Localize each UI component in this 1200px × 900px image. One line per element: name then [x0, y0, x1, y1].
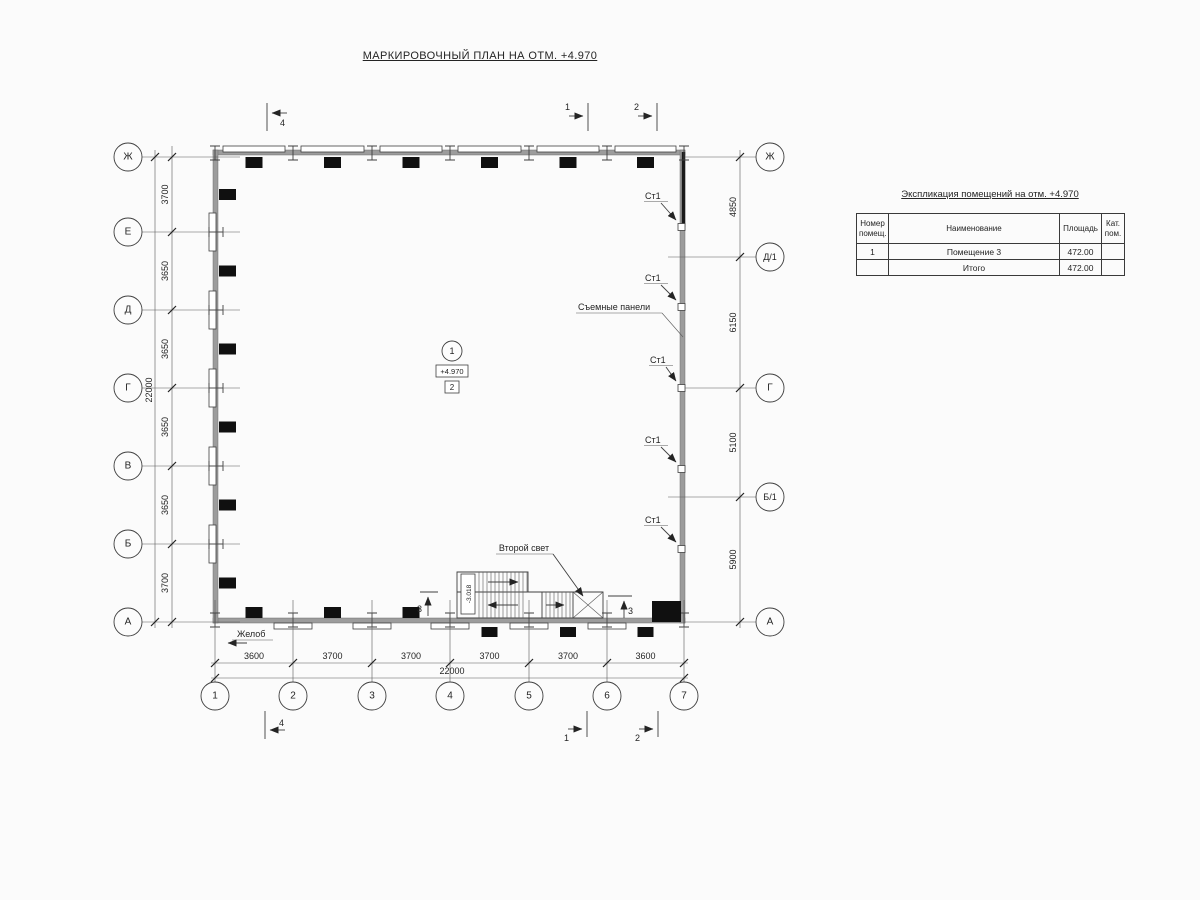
- axis-label: А: [767, 617, 774, 628]
- axis-label: Б/1: [763, 492, 776, 502]
- wall-panels: [209, 146, 676, 629]
- schedule-header-row: Номер помещ. Наименование Площадь Кат. п…: [857, 214, 1125, 244]
- schedule-cell-cat: [1102, 244, 1125, 260]
- schedule-table: Номер помещ. Наименование Площадь Кат. п…: [856, 213, 1125, 276]
- schedule-total-row: Итого 472.00: [857, 260, 1125, 276]
- axis-label: Д/1: [763, 252, 777, 262]
- axis-label: 1: [212, 691, 218, 702]
- dim-left-3: 3650: [160, 339, 170, 359]
- dim-left-2: 3650: [160, 261, 170, 281]
- zone-tag: 2: [450, 383, 455, 392]
- schedule-header-cat: Кат. пом.: [1102, 214, 1125, 244]
- schedule-cell-area: 472.00: [1060, 244, 1102, 260]
- axis-label: Б: [125, 539, 132, 550]
- dim-right-3: 5100: [728, 432, 738, 452]
- room-schedule: Экспликация помещений на отм. +4.970 Ном…: [856, 189, 1124, 276]
- plan-labels: Ст1 Ст1 Ст1 Ст1 Ст1 Съемные панели Второ…: [228, 191, 683, 643]
- section-4-label: 4: [279, 718, 284, 728]
- schedule-cell-num: 1: [857, 244, 889, 260]
- section-2-label: 2: [635, 733, 640, 743]
- st1-label: Ст1: [645, 191, 661, 201]
- dim-left-1: 3700: [160, 184, 170, 204]
- st1-label: Ст1: [650, 355, 666, 365]
- gutter-label: Желоб: [237, 629, 265, 639]
- axis-label: А: [125, 617, 132, 628]
- dim-bottom-total: 22000: [439, 666, 464, 676]
- st1-label: Ст1: [645, 515, 661, 525]
- axis-label: Ж: [123, 152, 133, 163]
- dim-bottom-3: 3700: [401, 651, 421, 661]
- axis-label: Г: [767, 383, 773, 394]
- axis-label: Е: [125, 227, 132, 238]
- dim-left-5: 3650: [160, 495, 170, 515]
- dim-right-2: 6150: [728, 312, 738, 332]
- st1-label: Ст1: [645, 435, 661, 445]
- section-3-label: 3: [417, 604, 422, 614]
- schedule-header-num: Номер помещ.: [857, 214, 889, 244]
- section-1-label: 1: [564, 733, 569, 743]
- axis-label: Г: [125, 383, 131, 394]
- section-marks: 4 1 2 4 1 2 3 3: [265, 102, 658, 743]
- dim-bottom-5: 3700: [558, 651, 578, 661]
- removable-panels-label: Съемные панели: [578, 302, 650, 312]
- dim-left-total: 22000: [144, 377, 154, 402]
- dim-bottom-2: 3700: [322, 651, 342, 661]
- schedule-title: Экспликация помещений на отм. +4.970: [856, 189, 1124, 200]
- axis-bubbles-right: Ж Д/1 Г Б/1 А: [756, 143, 784, 636]
- dim-bottom-4: 3700: [479, 651, 499, 661]
- schedule-cell-name: Помещение 3: [889, 244, 1060, 260]
- elevation-tag: +4.970: [440, 367, 463, 376]
- schedule-header-name: Наименование: [889, 214, 1060, 244]
- room-number: 1: [449, 346, 454, 356]
- corner-equipment-block: [652, 601, 681, 622]
- dim-right-4: 5900: [728, 549, 738, 569]
- canvas: { "page": { "title": "МАРКИРОВОЧНЫЙ ПЛАН…: [0, 0, 1200, 900]
- section-1-label: 1: [565, 102, 570, 112]
- axis-label: 3: [369, 691, 375, 702]
- axis-label: В: [125, 461, 132, 472]
- stair-elevation-label: -3.018: [466, 584, 473, 603]
- schedule-total-area: 472.00: [1060, 260, 1102, 276]
- axis-bubbles-left: Ж Е Д Г В Б А: [114, 143, 142, 636]
- dim-right-1: 4850: [728, 197, 738, 217]
- schedule-row: 1 Помещение 3 472.00: [857, 244, 1125, 260]
- axis-label: 6: [604, 691, 610, 702]
- axis-label: 2: [290, 691, 296, 702]
- axis-label: Ж: [765, 152, 775, 163]
- dim-left-4: 3650: [160, 417, 170, 437]
- axis-label: Д: [125, 305, 132, 316]
- axis-label: 7: [681, 691, 687, 702]
- schedule-cell-empty: [1102, 260, 1125, 276]
- schedule-header-area: Площадь: [1060, 214, 1102, 244]
- axis-label: 5: [526, 691, 532, 702]
- dim-bottom-1: 3600: [244, 651, 264, 661]
- staircase: -3.018: [457, 572, 603, 618]
- st1-label: Ст1: [645, 273, 661, 283]
- axis-label: 4: [447, 691, 453, 702]
- axis-bubbles-bottom: 1 2 3 4 5 6 7: [201, 682, 698, 710]
- section-4-label: 4: [280, 118, 285, 128]
- schedule-cell-empty: [857, 260, 889, 276]
- floor-plan-drawing: 3700 3650 3650 3650 3650 3700 22000 4850…: [0, 0, 1200, 900]
- section-2-label: 2: [634, 102, 639, 112]
- section-3-label: 3: [628, 606, 633, 616]
- dim-bottom-6: 3600: [635, 651, 655, 661]
- schedule-total-label: Итого: [889, 260, 1060, 276]
- dim-left-6: 3700: [160, 573, 170, 593]
- vent-blocks: [219, 157, 681, 637]
- second-light-label: Второй свет: [499, 543, 549, 553]
